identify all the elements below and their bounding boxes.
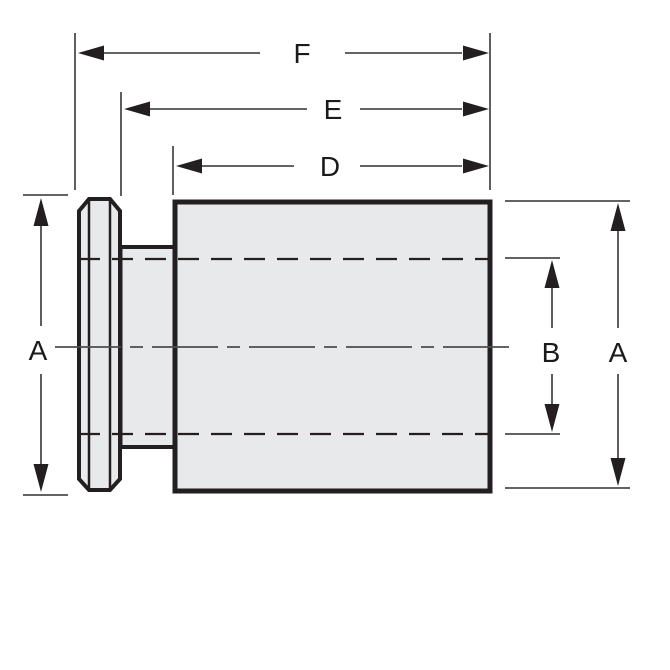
arrowhead-b-down <box>545 404 560 432</box>
arrowhead-a-right-down <box>611 458 626 486</box>
dimension-a-left: A <box>23 195 68 495</box>
dim-a-right-label: A <box>609 337 628 368</box>
arrowhead-f-left <box>78 46 104 61</box>
dimension-d: D <box>173 146 489 195</box>
arrowhead-e-right <box>463 102 489 117</box>
part-view <box>79 199 490 491</box>
dimension-b: B <box>505 258 560 434</box>
arrowhead-a-left-down <box>34 464 49 492</box>
arrowhead-a-right-up <box>611 203 626 231</box>
dimension-e: E <box>121 92 489 196</box>
dimension-drawing: F E D A <box>0 0 670 670</box>
arrowhead-b-up <box>545 260 560 288</box>
dim-f-label: F <box>293 38 310 69</box>
dim-b-label: B <box>542 337 561 368</box>
technical-drawing-page: F E D A <box>0 0 670 670</box>
dim-e-label: E <box>324 94 343 125</box>
arrowhead-e-left <box>124 102 150 117</box>
dimension-a-right: A <box>505 201 630 488</box>
arrowhead-a-left-up <box>34 198 49 226</box>
arrowhead-f-right <box>463 46 489 61</box>
arrowhead-d-left <box>176 159 202 174</box>
dim-d-label: D <box>320 151 340 182</box>
flange-section <box>79 199 120 490</box>
dim-a-left-label: A <box>29 335 48 366</box>
arrowhead-d-right <box>463 159 489 174</box>
